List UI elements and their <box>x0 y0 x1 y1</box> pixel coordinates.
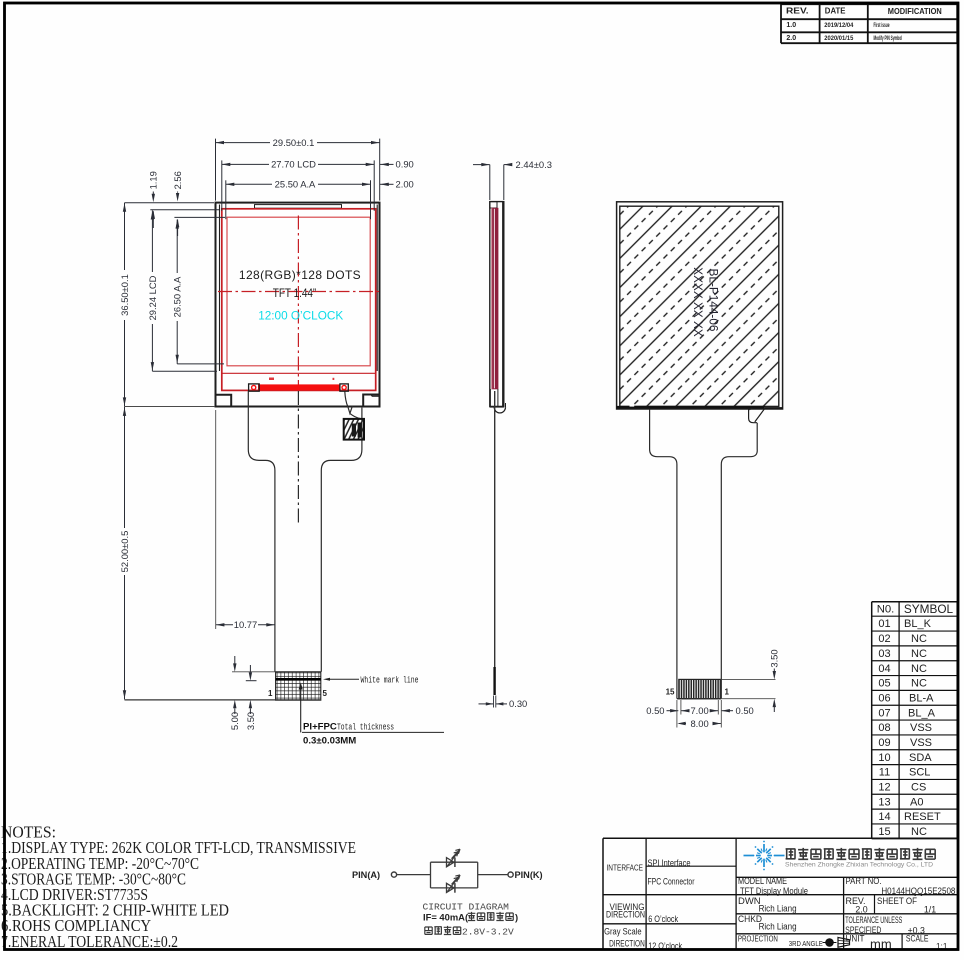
svg-text:02: 02 <box>878 633 890 645</box>
svg-text:PIN(K): PIN(K) <box>515 870 543 880</box>
svg-text:REV.: REV. <box>786 6 809 16</box>
svg-text:1: 1 <box>268 689 273 698</box>
svg-text:Rich Liang: Rich Liang <box>759 922 797 932</box>
svg-text:MODIFICATION: MODIFICATION <box>888 6 942 16</box>
svg-text:2.0: 2.0 <box>786 35 796 42</box>
svg-text:Total thickness: Total thickness <box>337 722 394 733</box>
svg-text:VSS: VSS <box>910 722 932 734</box>
svg-text:52.00±0.5: 52.00±0.5 <box>119 531 130 573</box>
svg-text:DWN: DWN <box>738 896 761 906</box>
svg-text:11: 11 <box>879 767 890 779</box>
svg-text:26.50 A.A: 26.50 A.A <box>172 276 183 317</box>
svg-text:Modify PIN Symbol: Modify PIN Symbol <box>874 35 903 42</box>
svg-text:6 O’clock: 6 O’clock <box>648 914 678 924</box>
svg-text:VSS: VSS <box>910 737 932 749</box>
svg-text:IF= 40mA(: IF= 40mA( <box>423 912 469 923</box>
svg-text:7.ENERAL TOLERANCE:±0.2: 7.ENERAL TOLERANCE:±0.2 <box>1 932 178 951</box>
svg-text:TFT 1.44”: TFT 1.44” <box>273 288 317 300</box>
svg-text:SCALE: SCALE <box>906 933 929 943</box>
svg-text:1: 1 <box>725 688 730 697</box>
svg-text:3RD ANGLE: 3RD ANGLE <box>789 939 823 948</box>
svg-text:DATE: DATE <box>825 6 846 16</box>
svg-text:2.00: 2.00 <box>396 179 414 190</box>
svg-text:3.50: 3.50 <box>769 649 780 667</box>
svg-text:SPI Interface: SPI Interface <box>648 858 691 868</box>
svg-text:MODEL NAME: MODEL NAME <box>738 876 787 886</box>
svg-text:2.56: 2.56 <box>172 171 183 189</box>
svg-text:NC: NC <box>911 663 927 675</box>
svg-text:First issue: First issue <box>874 22 890 29</box>
svg-text:8.00: 8.00 <box>690 718 708 729</box>
svg-text:PROJECTION: PROJECTION <box>738 933 778 943</box>
svg-text:BL-A: BL-A <box>909 692 934 704</box>
svg-text:NC: NC <box>911 678 927 690</box>
svg-text:15: 15 <box>878 826 890 838</box>
svg-text:29.24 LCD: 29.24 LCD <box>147 275 158 320</box>
svg-text:PI+FPC: PI+FPC <box>303 721 337 732</box>
svg-text:N0.: N0. <box>877 604 895 616</box>
svg-text:12:00 O’CLOCK: 12:00 O’CLOCK <box>258 308 343 322</box>
svg-text:10: 10 <box>878 752 890 764</box>
svg-text:3.50: 3.50 <box>245 712 256 730</box>
svg-text:08: 08 <box>878 722 890 734</box>
svg-text:FPC Connector: FPC Connector <box>648 876 695 886</box>
svg-text:25.50 A.A: 25.50 A.A <box>275 179 316 190</box>
svg-text:14: 14 <box>878 811 890 823</box>
svg-text:SYMBOL: SYMBOL <box>904 602 954 616</box>
svg-text:H0144HQQ15E2508: H0144HQQ15E2508 <box>881 886 955 896</box>
svg-text:UNIT: UNIT <box>846 933 866 943</box>
svg-text:White mark line: White mark line <box>361 675 419 686</box>
svg-text:NC: NC <box>911 648 927 660</box>
svg-text:CS: CS <box>911 781 926 793</box>
svg-text:07: 07 <box>878 707 890 719</box>
svg-text:INTERFACE: INTERFACE <box>607 863 644 873</box>
svg-text:1/1: 1/1 <box>924 904 936 914</box>
svg-text:01: 01 <box>878 618 890 630</box>
svg-text:29.50±0.1: 29.50±0.1 <box>273 137 315 148</box>
svg-text:PIN(A): PIN(A) <box>352 870 380 880</box>
svg-text:Rich Liang: Rich Liang <box>759 904 797 914</box>
svg-text:XXXX XX XX: XXXX XX XX <box>691 267 705 337</box>
svg-text:36.50±0.1: 36.50±0.1 <box>119 274 130 316</box>
svg-text:DIRECTION: DIRECTION <box>606 909 645 919</box>
svg-text:5.00: 5.00 <box>229 712 240 730</box>
svg-text:03: 03 <box>878 648 890 660</box>
svg-text:DIRECTION: DIRECTION <box>609 938 645 948</box>
svg-text:Shenzhen Zhongke Zhixian Techn: Shenzhen Zhongke Zhixian Technology Co.,… <box>785 861 933 868</box>
svg-text:13: 13 <box>878 796 890 808</box>
svg-text:12: 12 <box>878 781 890 793</box>
svg-text:Gray Scale: Gray Scale <box>604 927 642 937</box>
svg-text:TFT Display Module: TFT Display Module <box>740 886 808 896</box>
svg-text:1.19: 1.19 <box>147 171 158 189</box>
svg-text:2020/01/15: 2020/01/15 <box>824 35 853 42</box>
svg-text:0.3±0.03MM: 0.3±0.03MM <box>303 736 356 747</box>
svg-text:SCL: SCL <box>909 767 930 779</box>
svg-text:2019/12/04: 2019/12/04 <box>824 22 853 29</box>
svg-text:0.90: 0.90 <box>396 159 414 170</box>
svg-text:0.30: 0.30 <box>509 698 527 709</box>
svg-text:10.77: 10.77 <box>234 619 257 630</box>
svg-text:NC: NC <box>911 826 927 838</box>
svg-text:2.44±0.3: 2.44±0.3 <box>516 159 552 170</box>
svg-text:04: 04 <box>878 663 890 675</box>
svg-text:RESET: RESET <box>904 811 941 823</box>
svg-text:128(RGB)*128 DOTS: 128(RGB)*128 DOTS <box>239 268 361 282</box>
svg-text:15: 15 <box>666 688 675 697</box>
svg-text:0.50: 0.50 <box>646 705 664 716</box>
svg-text:1.0: 1.0 <box>786 22 796 29</box>
svg-text:A0: A0 <box>910 796 923 808</box>
svg-text:0.50: 0.50 <box>736 705 754 716</box>
svg-text:09: 09 <box>878 737 890 749</box>
svg-text:BL-P144-06: BL-P144-06 <box>707 269 721 332</box>
svg-text:27.70 LCD: 27.70 LCD <box>271 159 316 170</box>
svg-text:): ) <box>515 912 518 923</box>
svg-text:NC: NC <box>911 633 927 645</box>
svg-text:2.8V-3.2V: 2.8V-3.2V <box>462 927 514 938</box>
svg-text:5: 5 <box>323 689 328 698</box>
svg-text:7.00: 7.00 <box>690 705 708 716</box>
svg-text:05: 05 <box>878 678 890 690</box>
svg-text:SDA: SDA <box>909 752 932 764</box>
svg-text:2.0: 2.0 <box>855 904 867 914</box>
svg-text:06: 06 <box>878 692 890 704</box>
svg-text:TOLERANCE UNLESS: TOLERANCE UNLESS <box>845 915 902 925</box>
svg-text:BL_A: BL_A <box>908 707 936 719</box>
svg-text:SHEET OF: SHEET OF <box>877 896 918 906</box>
svg-text:PART NO.: PART NO. <box>846 876 882 886</box>
svg-text:BL_K: BL_K <box>904 618 932 630</box>
